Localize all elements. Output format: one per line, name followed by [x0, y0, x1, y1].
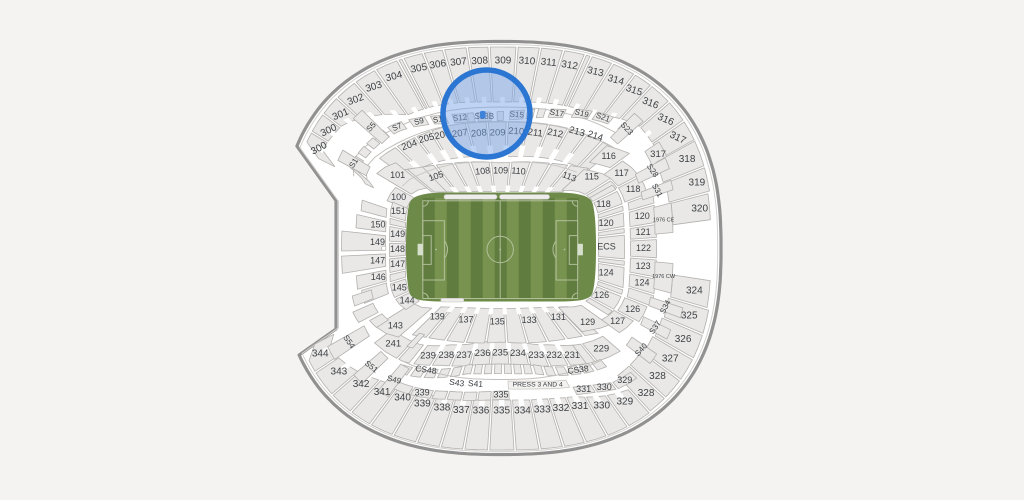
svg-text:308: 308 — [471, 55, 489, 67]
svg-text:311: 311 — [540, 57, 557, 70]
svg-text:325: 325 — [681, 310, 698, 321]
svg-text:146: 146 — [371, 272, 386, 282]
svg-text:115: 115 — [585, 171, 599, 181]
svg-text:147: 147 — [390, 259, 405, 269]
svg-text:335: 335 — [493, 390, 508, 400]
svg-text:148: 148 — [390, 244, 405, 254]
svg-text:339: 339 — [414, 399, 431, 410]
svg-text:121: 121 — [636, 227, 651, 237]
svg-text:234: 234 — [510, 348, 526, 359]
svg-text:340: 340 — [394, 393, 411, 404]
svg-text:328: 328 — [638, 388, 655, 399]
svg-text:329: 329 — [616, 396, 633, 407]
svg-text:330: 330 — [593, 401, 610, 412]
svg-text:120: 120 — [635, 211, 650, 221]
svg-text:336: 336 — [473, 406, 490, 417]
svg-text:236: 236 — [475, 348, 491, 359]
svg-text:307: 307 — [450, 56, 468, 69]
svg-text:237: 237 — [456, 350, 472, 361]
svg-text:127: 127 — [610, 316, 625, 326]
svg-text:135: 135 — [490, 316, 505, 326]
svg-text:344: 344 — [312, 349, 329, 360]
svg-text:145: 145 — [392, 282, 407, 292]
svg-text:133: 133 — [522, 315, 537, 325]
svg-text:334: 334 — [514, 406, 531, 417]
svg-text:343: 343 — [331, 367, 348, 378]
svg-text:117: 117 — [614, 168, 628, 178]
svg-text:231: 231 — [564, 350, 580, 361]
svg-text:139: 139 — [430, 311, 445, 321]
svg-text:229: 229 — [593, 344, 609, 355]
svg-text:319: 319 — [689, 177, 706, 188]
svg-text:324: 324 — [686, 286, 703, 297]
svg-text:131: 131 — [551, 312, 566, 322]
svg-text:320: 320 — [691, 203, 708, 214]
svg-text:110: 110 — [511, 165, 526, 176]
svg-text:137: 137 — [458, 314, 473, 324]
svg-text:PRESS 3 AND 4: PRESS 3 AND 4 — [513, 382, 563, 389]
svg-text:126: 126 — [625, 304, 640, 314]
svg-text:329: 329 — [617, 375, 632, 385]
svg-text:1976 CW: 1976 CW — [652, 274, 676, 280]
svg-text:1976 CE: 1976 CE — [653, 217, 675, 223]
svg-text:232: 232 — [546, 350, 562, 361]
svg-text:335: 335 — [493, 406, 510, 417]
svg-text:151: 151 — [391, 206, 406, 216]
svg-text:338: 338 — [434, 403, 451, 414]
svg-text:235: 235 — [492, 348, 508, 359]
svg-text:326: 326 — [675, 334, 692, 345]
svg-text:149: 149 — [370, 237, 385, 247]
svg-text:239: 239 — [420, 350, 436, 361]
svg-text:339: 339 — [415, 387, 430, 397]
svg-text:309: 309 — [495, 56, 512, 67]
svg-text:101: 101 — [390, 170, 405, 180]
svg-text:122: 122 — [636, 243, 651, 253]
svg-text:342: 342 — [353, 379, 370, 390]
svg-text:S43: S43 — [449, 377, 466, 389]
svg-text:100: 100 — [391, 192, 406, 202]
svg-text:126: 126 — [594, 290, 609, 300]
svg-text:143: 143 — [388, 320, 403, 330]
svg-text:147: 147 — [370, 255, 385, 265]
svg-text:331: 331 — [576, 384, 591, 394]
svg-text:123: 123 — [636, 261, 651, 271]
svg-text:238: 238 — [438, 350, 454, 361]
svg-text:318: 318 — [679, 154, 696, 165]
svg-text:233: 233 — [528, 350, 544, 361]
svg-text:144: 144 — [400, 295, 415, 305]
svg-text:317: 317 — [650, 149, 666, 160]
svg-text:118: 118 — [626, 184, 640, 194]
svg-text:ECS: ECS — [597, 241, 616, 251]
svg-text:330: 330 — [597, 382, 612, 392]
svg-text:S41: S41 — [468, 378, 484, 389]
svg-text:337: 337 — [453, 405, 470, 416]
svg-text:124: 124 — [599, 268, 614, 278]
svg-text:332: 332 — [553, 403, 570, 414]
svg-text:327: 327 — [662, 353, 679, 364]
svg-text:120: 120 — [599, 218, 614, 228]
svg-text:333: 333 — [534, 405, 551, 416]
svg-text:109: 109 — [493, 165, 508, 175]
svg-text:310: 310 — [518, 55, 536, 67]
svg-text:150: 150 — [370, 220, 385, 230]
svg-text:124: 124 — [634, 278, 649, 288]
svg-text:118: 118 — [596, 199, 610, 209]
svg-text:241: 241 — [385, 339, 401, 350]
svg-text:341: 341 — [374, 387, 391, 398]
svg-text:116: 116 — [602, 151, 616, 161]
svg-text:129: 129 — [580, 317, 595, 327]
svg-text:108: 108 — [475, 165, 491, 177]
svg-text:149: 149 — [390, 229, 405, 239]
svg-text:328: 328 — [649, 371, 666, 382]
svg-text:331: 331 — [572, 401, 589, 412]
